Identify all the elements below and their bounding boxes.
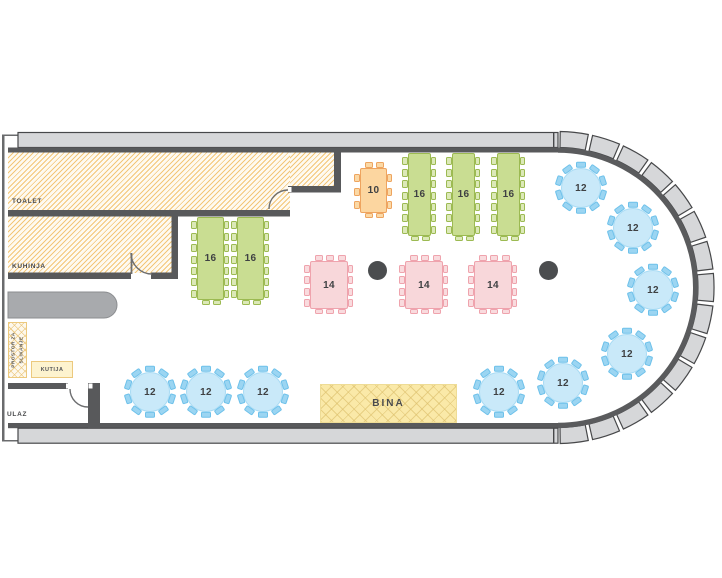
- chair: [224, 233, 230, 241]
- chair: [315, 255, 323, 261]
- chair: [491, 226, 497, 234]
- chair: [281, 394, 289, 405]
- table-square-14-a: 14: [310, 261, 348, 309]
- chair: [651, 215, 659, 226]
- table-seat-count: 12: [544, 364, 582, 402]
- chair: [468, 276, 474, 284]
- table-seat-count: 16: [238, 218, 263, 299]
- chair: [431, 169, 437, 177]
- chair: [671, 277, 679, 288]
- chair: [599, 175, 607, 186]
- chair: [490, 255, 498, 261]
- chair: [422, 236, 430, 242]
- stage: BINA: [320, 384, 457, 423]
- chair: [443, 276, 449, 284]
- chair: [517, 394, 525, 405]
- chair: [479, 255, 487, 261]
- chair: [191, 244, 197, 252]
- chair: [365, 162, 373, 168]
- chair: [475, 157, 481, 165]
- chair: [231, 256, 237, 264]
- chair: [231, 267, 237, 275]
- chair: [376, 162, 384, 168]
- chair: [402, 169, 408, 177]
- chair: [468, 299, 474, 307]
- chair: [502, 255, 510, 261]
- table-seat-count: 12: [480, 373, 518, 411]
- chair: [326, 309, 334, 315]
- chair: [599, 190, 607, 201]
- table-seat-count: 12: [131, 373, 169, 411]
- chair: [520, 169, 526, 177]
- table-long-16-b: 16: [237, 217, 264, 300]
- table-seat-count: 16: [453, 154, 474, 235]
- chair: [446, 180, 452, 188]
- chair: [512, 288, 518, 296]
- chair: [491, 157, 497, 165]
- chair: [253, 300, 261, 306]
- chair: [201, 412, 211, 418]
- chair: [410, 255, 418, 261]
- chair: [651, 230, 659, 241]
- chair: [491, 203, 497, 211]
- gift-box-label: KUTIJA: [41, 367, 64, 373]
- chair: [191, 221, 197, 229]
- chair: [479, 309, 487, 315]
- chair: [520, 192, 526, 200]
- chair: [264, 221, 270, 229]
- photo-area-label: PROSTOR ZA SLIKANJE: [10, 332, 25, 367]
- chair: [431, 157, 437, 165]
- chair: [402, 203, 408, 211]
- chair: [628, 202, 638, 208]
- chair: [431, 180, 437, 188]
- chair: [475, 226, 481, 234]
- table-seat-count: 12: [562, 169, 600, 207]
- chair: [433, 309, 441, 315]
- chair: [231, 290, 237, 298]
- photo-area-box: PROSTOR ZA SLIKANJE: [8, 322, 27, 378]
- chair: [399, 265, 405, 273]
- chair: [421, 309, 429, 315]
- chair: [446, 214, 452, 222]
- chair: [581, 385, 589, 396]
- chair: [512, 265, 518, 273]
- table-round-12-a: 12: [130, 372, 170, 412]
- chair: [354, 201, 360, 209]
- chair: [581, 370, 589, 381]
- table-seat-count: 16: [409, 154, 430, 235]
- chair: [191, 278, 197, 286]
- table-round-12-b: 12: [186, 372, 226, 412]
- table-seat-count: 12: [634, 271, 672, 309]
- chair: [446, 203, 452, 211]
- chair: [475, 169, 481, 177]
- chair: [387, 174, 393, 182]
- chair: [376, 213, 384, 219]
- chair: [520, 214, 526, 222]
- chair: [399, 299, 405, 307]
- chair: [622, 328, 632, 334]
- chair: [517, 379, 525, 390]
- table-seat-count: 14: [406, 262, 442, 308]
- chair: [231, 278, 237, 286]
- chair: [431, 214, 437, 222]
- chair: [191, 267, 197, 275]
- chair: [365, 213, 373, 219]
- chair: [475, 203, 481, 211]
- chair: [468, 265, 474, 273]
- pillar-column: [539, 261, 558, 280]
- chair: [399, 276, 405, 284]
- table-long-16-d: 16: [452, 153, 475, 236]
- chair: [446, 157, 452, 165]
- chair: [491, 214, 497, 222]
- chair: [648, 264, 658, 270]
- chair: [258, 366, 268, 372]
- table-round-12-i: 12: [561, 168, 601, 208]
- chair: [431, 226, 437, 234]
- chair: [475, 180, 481, 188]
- table-seat-count: 12: [187, 373, 225, 411]
- chair: [224, 379, 232, 390]
- tables-layer: 161616161610141414121212121212121212: [0, 0, 722, 578]
- chair: [191, 233, 197, 241]
- chair: [231, 244, 237, 252]
- chair: [304, 265, 310, 273]
- table-seat-count: 16: [498, 154, 519, 235]
- table-seat-count: 14: [311, 262, 347, 308]
- chair: [433, 255, 441, 261]
- chair: [315, 309, 323, 315]
- chair: [338, 309, 346, 315]
- chair: [490, 309, 498, 315]
- table-seat-count: 12: [244, 373, 282, 411]
- chair: [443, 299, 449, 307]
- table-seat-count: 16: [198, 218, 223, 299]
- chair: [168, 394, 176, 405]
- chair: [558, 403, 568, 409]
- chair: [224, 290, 230, 298]
- table-round-12-d: 12: [479, 372, 519, 412]
- chair: [491, 169, 497, 177]
- chair: [402, 157, 408, 165]
- chair: [402, 226, 408, 234]
- chair: [304, 299, 310, 307]
- chair: [213, 300, 221, 306]
- chair: [224, 394, 232, 405]
- chair: [224, 221, 230, 229]
- chair: [354, 188, 360, 196]
- chair: [304, 288, 310, 296]
- chair: [354, 174, 360, 182]
- chair: [520, 226, 526, 234]
- chair: [446, 169, 452, 177]
- chair: [231, 233, 237, 241]
- chair: [258, 412, 268, 418]
- chair: [338, 255, 346, 261]
- table-head-10: 10: [360, 168, 387, 213]
- table-round-12-e: 12: [543, 363, 583, 403]
- table-round-12-c: 12: [243, 372, 283, 412]
- chair: [304, 276, 310, 284]
- chair: [622, 374, 632, 380]
- chair: [475, 214, 481, 222]
- table-seat-count: 12: [608, 335, 646, 373]
- chair: [191, 256, 197, 264]
- chair: [443, 288, 449, 296]
- table-long-16-c: 16: [408, 153, 431, 236]
- table-seat-count: 10: [361, 169, 386, 212]
- chair: [466, 236, 474, 242]
- chair: [264, 244, 270, 252]
- chair: [502, 309, 510, 315]
- chair: [576, 208, 586, 214]
- chair: [264, 256, 270, 264]
- chair: [264, 290, 270, 298]
- chair: [468, 288, 474, 296]
- chair: [264, 233, 270, 241]
- chair: [326, 255, 334, 261]
- chair: [281, 379, 289, 390]
- chair: [455, 236, 463, 242]
- chair: [671, 292, 679, 303]
- chair: [558, 357, 568, 363]
- chair: [348, 265, 354, 273]
- chair: [202, 300, 210, 306]
- chair: [191, 290, 197, 298]
- chair: [411, 236, 419, 242]
- chair: [431, 203, 437, 211]
- chair: [511, 236, 519, 242]
- room-label-kuhinja: KUHINJA: [12, 263, 46, 270]
- chair: [512, 299, 518, 307]
- table-long-16-e: 16: [497, 153, 520, 236]
- table-round-12-f: 12: [607, 334, 647, 374]
- chair: [224, 267, 230, 275]
- table-seat-count: 14: [475, 262, 511, 308]
- chair: [402, 214, 408, 222]
- table-round-12-h: 12: [613, 208, 653, 248]
- chair: [145, 366, 155, 372]
- chair: [387, 201, 393, 209]
- gift-box: KUTIJA: [31, 361, 73, 378]
- chair: [224, 244, 230, 252]
- chair: [168, 379, 176, 390]
- chair: [348, 288, 354, 296]
- chair: [491, 192, 497, 200]
- chair: [224, 278, 230, 286]
- chair: [520, 157, 526, 165]
- room-label-toalet: TOALET: [12, 198, 42, 205]
- chair: [348, 299, 354, 307]
- chair: [628, 248, 638, 254]
- chair: [399, 288, 405, 296]
- chair: [520, 180, 526, 188]
- chair: [224, 256, 230, 264]
- table-square-14-b: 14: [405, 261, 443, 309]
- table-square-14-c: 14: [474, 261, 512, 309]
- chair: [443, 265, 449, 273]
- chair: [491, 180, 497, 188]
- chair: [231, 221, 237, 229]
- chair: [201, 366, 211, 372]
- chair: [402, 180, 408, 188]
- room-label-ulaz: ULAZ: [7, 411, 27, 418]
- chair: [576, 162, 586, 168]
- table-round-12-g: 12: [633, 270, 673, 310]
- chair: [446, 226, 452, 234]
- chair: [512, 276, 518, 284]
- chair: [348, 276, 354, 284]
- chair: [494, 412, 504, 418]
- stage-label: BINA: [372, 398, 404, 409]
- chair: [500, 236, 508, 242]
- chair: [520, 203, 526, 211]
- chair: [446, 192, 452, 200]
- chair: [648, 310, 658, 316]
- chair: [402, 192, 408, 200]
- chair: [387, 188, 393, 196]
- chair: [645, 356, 653, 367]
- chair: [421, 255, 429, 261]
- chair: [242, 300, 250, 306]
- chair: [494, 366, 504, 372]
- chair: [264, 278, 270, 286]
- chair: [264, 267, 270, 275]
- floor-plan: TOALET KUHINJA ULAZ PROSTOR ZA SLIKANJE …: [0, 0, 722, 578]
- pillar-column: [368, 261, 387, 280]
- table-long-16-a: 16: [197, 217, 224, 300]
- chair: [410, 309, 418, 315]
- chair: [475, 192, 481, 200]
- chair: [645, 341, 653, 352]
- chair: [145, 412, 155, 418]
- chair: [431, 192, 437, 200]
- table-seat-count: 12: [614, 209, 652, 247]
